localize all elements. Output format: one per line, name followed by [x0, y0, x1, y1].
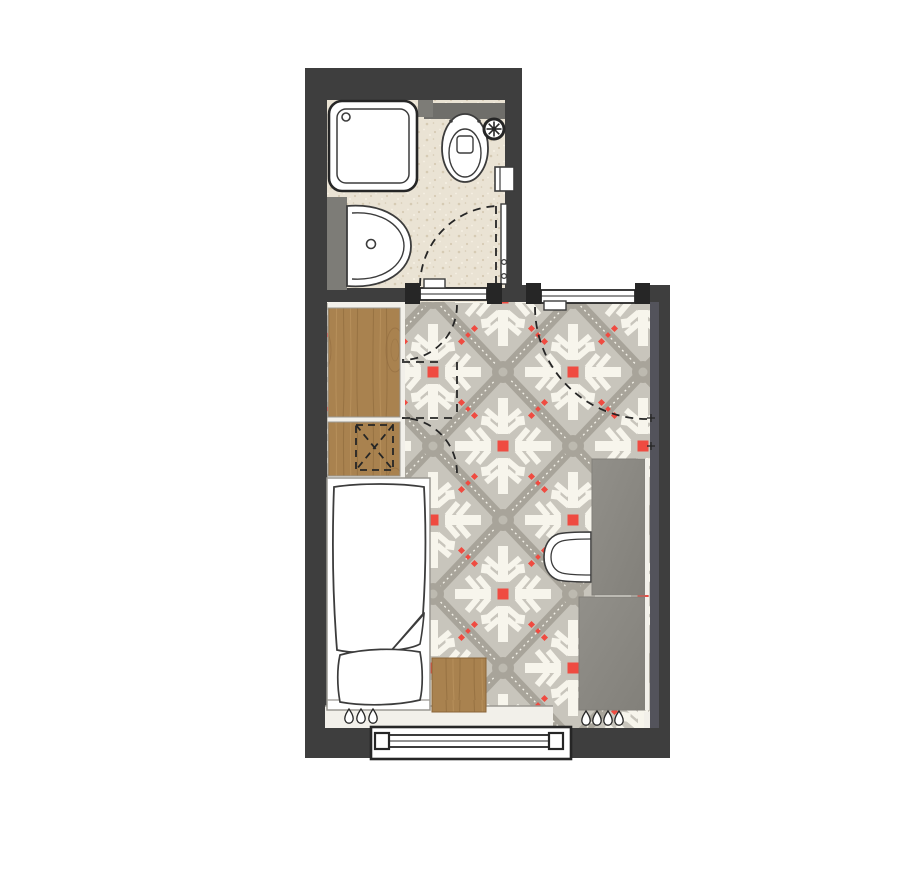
basin-drain-icon: [367, 240, 376, 249]
floor-plan-svg: [0, 0, 922, 879]
bathroom-door-leaf: [501, 204, 507, 284]
door-handle: [544, 301, 566, 310]
single-bed: [327, 478, 430, 710]
desk-chair: [544, 532, 591, 582]
wardrobe: [328, 302, 405, 480]
window-handle: [549, 733, 563, 749]
pillow: [338, 649, 423, 704]
window: [371, 727, 571, 759]
radiator-left: [345, 709, 377, 723]
wall-cabinet: [495, 167, 514, 191]
sideboard: [579, 597, 649, 710]
shower-drain-icon: [342, 113, 350, 121]
door-jamb: [487, 283, 502, 304]
shower-tray: [329, 101, 417, 191]
bathroom-sink-pillar: [327, 197, 347, 290]
desk: [592, 459, 649, 595]
wall-inner-shade: [650, 302, 659, 728]
door-jamb: [635, 283, 650, 304]
window-handle: [375, 733, 389, 749]
floor-plan-page: [0, 0, 922, 879]
door-jamb: [526, 283, 541, 304]
door-handle: [424, 279, 445, 288]
nightstand: [432, 658, 486, 712]
extractor-fan-icon: [484, 119, 504, 139]
toilet: [442, 114, 488, 182]
door-jamb: [405, 283, 420, 304]
bathroom-partition-tab: [418, 100, 433, 117]
wardrobe-top: [328, 308, 400, 417]
